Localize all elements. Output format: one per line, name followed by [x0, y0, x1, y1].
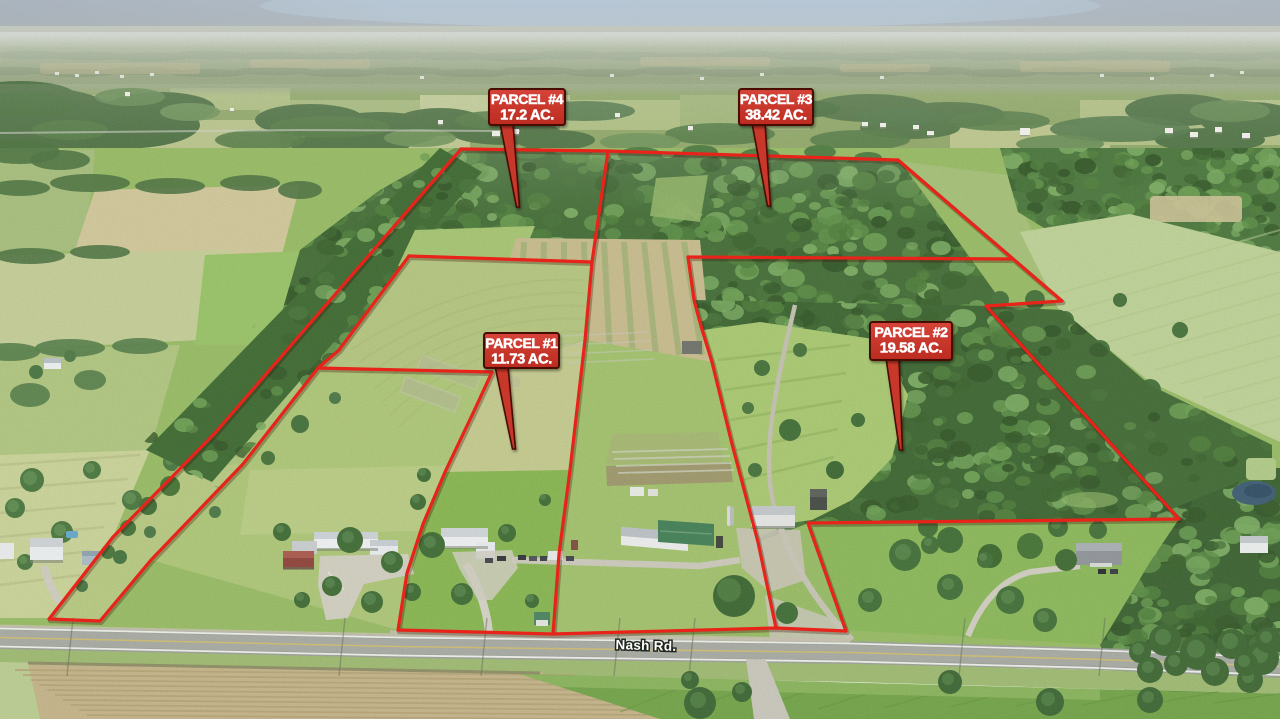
svg-text:PARCEL #1: PARCEL #1 — [485, 335, 558, 351]
svg-text:38.42 AC.: 38.42 AC. — [745, 108, 807, 124]
svg-text:17.2 AC.: 17.2 AC. — [500, 108, 554, 124]
svg-text:PARCEL #4: PARCEL #4 — [491, 91, 564, 107]
svg-text:Nash Rd.: Nash Rd. — [615, 637, 676, 654]
svg-text:PARCEL #3: PARCEL #3 — [740, 91, 813, 107]
svg-text:19.58 AC.: 19.58 AC. — [880, 341, 943, 357]
svg-text:PARCEL #2: PARCEL #2 — [874, 325, 948, 341]
svg-text:11.73 AC.: 11.73 AC. — [491, 352, 552, 368]
